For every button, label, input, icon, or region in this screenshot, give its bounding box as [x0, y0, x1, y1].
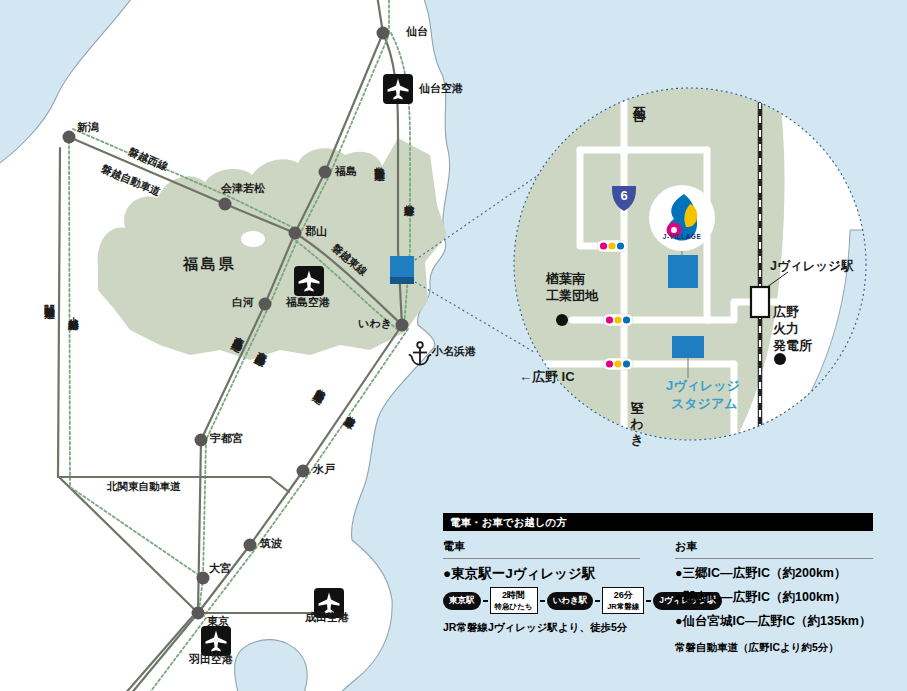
- fukushima-airport-icon: [294, 266, 324, 296]
- city-label-mito: 水戸: [313, 464, 335, 476]
- route-label-joban-expwy-north: 常磐自動車道: [374, 158, 385, 164]
- jvillage-station-label: Jヴィレッジ駅: [770, 260, 853, 273]
- port-label-onahama: 小名浜港: [432, 346, 476, 358]
- route-connector: [646, 600, 651, 602]
- access-info-panel: 電車・お車でお越しの方 電車 ●東京駅ーJヴィレッジ駅 東京駅 2時間 特急ひた…: [443, 513, 873, 679]
- airport-label-narita: 成田空港: [305, 612, 349, 624]
- industrial-park-label-1: 楢葉南: [546, 272, 585, 286]
- city-label-iwaki: いわき: [358, 318, 392, 330]
- car-route-misato: ●三郷IC―広野IC（約200km）: [675, 565, 846, 582]
- access-map: 仙台 仙台空港 新潟 磐越西線 磐越自動車道 会津若松 福島 郡山 常磐自動車道…: [0, 0, 907, 691]
- leg-duration: 2時間: [495, 589, 533, 602]
- city-label-omiya: 大宮: [209, 563, 231, 575]
- city-label-niigata: 新潟: [77, 122, 99, 134]
- inset-label-to-sendai: 至仙台: [632, 96, 646, 99]
- sendai-airport-icon: [383, 74, 413, 104]
- jvillage-station-marker: [751, 287, 769, 317]
- train-note: JR常磐線Jヴィレッジ駅より、徒歩5分: [443, 621, 627, 635]
- leg-box-joban: 26分 JR常磐線: [602, 587, 644, 614]
- traffic-signal-icon: [597, 240, 627, 252]
- airport-label-haneda: 羽田空港: [189, 654, 233, 666]
- jvillage-logo-text: J-VILLAGE: [655, 234, 709, 241]
- city-label-utsunomiya: 宇都宮: [210, 433, 243, 445]
- panel-header: 電車・お車でお越しの方: [443, 513, 873, 531]
- route-label-kanetsu-expwy: 関越自動車道: [44, 296, 55, 302]
- route-label-joetsu-shinkansen: 上越新幹線: [68, 308, 79, 313]
- route-connector: [540, 600, 545, 602]
- airport-label-fukushima: 福島空港: [286, 297, 330, 309]
- leg-box-hitachi: 2時間 特急ひたち: [490, 587, 538, 614]
- haneda-airport-icon: [201, 626, 231, 656]
- city-label-tsukuba: 筑波: [260, 538, 282, 550]
- route-6-number: 6: [615, 189, 633, 203]
- route-connector: [595, 600, 600, 602]
- power-plant-label-1: 広野: [773, 305, 799, 319]
- lake-inawashiro: [241, 231, 265, 247]
- city-label-koriyama: 郡山: [305, 226, 327, 238]
- city-label-sendai: 仙台: [406, 26, 428, 38]
- traffic-signal-icon: [603, 314, 633, 326]
- industrial-park-label-2: 工業団地: [546, 289, 598, 303]
- jvillage-stadium-building: [672, 336, 704, 358]
- route-label-kitakanto-expwy: 北関東自動車道: [107, 481, 181, 492]
- city-label-fukushima: 福島: [335, 166, 357, 178]
- train-section-title: 電車: [443, 539, 640, 559]
- jvillage-location-marker: [390, 256, 414, 284]
- industrial-park-dot: [556, 314, 568, 326]
- airport-label-sendai: 仙台空港: [419, 83, 463, 95]
- car-note: 常磐自動車道（広野ICより約5分）: [675, 641, 839, 655]
- car-route-sendai-miyagi: ●仙台宮城IC―広野IC（約135km）: [675, 613, 871, 630]
- city-label-aizu: 会津若松: [221, 183, 265, 195]
- power-plant-dot: [774, 353, 786, 365]
- leg-duration: 26分: [607, 589, 639, 602]
- power-plant-label-2: 火力: [773, 322, 799, 336]
- car-route-koriyama: ●郡山IC―広野IC（約100km）: [675, 589, 846, 606]
- city-label-shirakawa: 白河: [232, 297, 254, 309]
- power-plant-label-3: 発電所: [773, 339, 812, 353]
- station-badge-tokyo: 東京駅: [443, 592, 481, 610]
- jvillage-stadium-label-2: スタジアム: [671, 397, 738, 411]
- car-section-title: お車: [675, 539, 873, 559]
- route-label-joban-line-north: 常磐線: [404, 196, 415, 199]
- station-badge-iwaki: いわき駅: [547, 592, 594, 610]
- jvillage-building: [668, 255, 698, 288]
- inset-label-to-iwaki: 至いわき: [630, 392, 644, 441]
- train-route-title: ●東京駅ーJヴィレッジ駅: [443, 565, 595, 583]
- route-connector: [483, 600, 488, 602]
- leg-train-name: 特急ひたち: [495, 602, 533, 612]
- traffic-signal-icon: [603, 358, 633, 370]
- region-label-fukushima: 福島県: [183, 256, 237, 272]
- city-label-tokyo: 東京: [207, 616, 229, 628]
- leg-train-name: JR常磐線: [607, 602, 639, 612]
- jvillage-logo: [649, 185, 715, 251]
- hirono-ic-label: ←広野 IC: [519, 370, 575, 384]
- jvillage-stadium-label-1: Jヴィレッジ: [666, 379, 740, 393]
